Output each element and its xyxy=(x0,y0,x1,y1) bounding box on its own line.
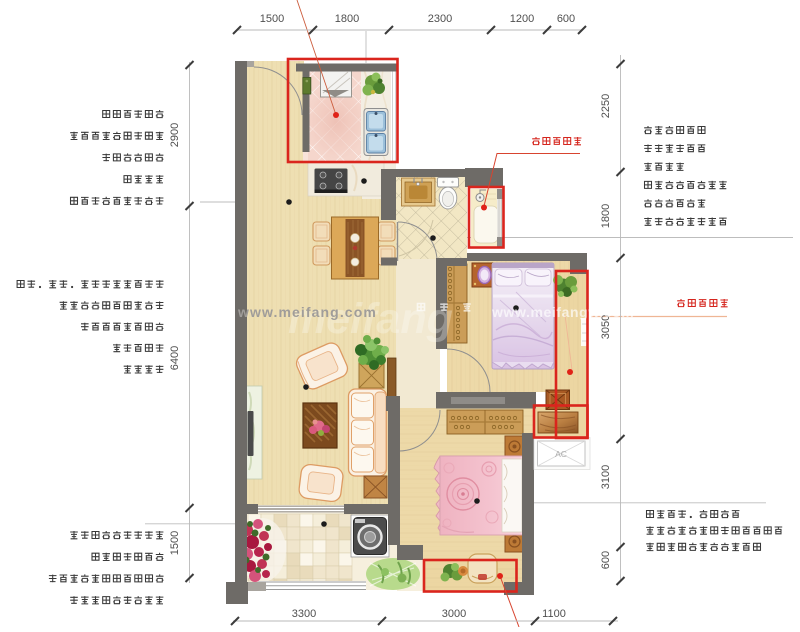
svg-text:600: 600 xyxy=(557,13,575,25)
svg-text:1500: 1500 xyxy=(169,531,181,555)
svg-text:2900: 2900 xyxy=(169,123,181,147)
svg-text:www.meifangw.com: www.meifangw.com xyxy=(491,304,634,320)
svg-text:3300: 3300 xyxy=(292,608,316,620)
svg-text:600: 600 xyxy=(600,551,612,569)
svg-text:2300: 2300 xyxy=(428,13,452,25)
svg-text:AC: AC xyxy=(555,449,567,459)
svg-text:1500: 1500 xyxy=(260,13,284,25)
svg-text:www.meifang.com: www.meifang.com xyxy=(237,304,377,320)
svg-text:3000: 3000 xyxy=(442,608,466,620)
svg-text:1200: 1200 xyxy=(510,13,534,25)
svg-text:1100: 1100 xyxy=(542,608,566,620)
svg-text:1800: 1800 xyxy=(335,13,359,25)
svg-text:2250: 2250 xyxy=(600,94,612,118)
svg-text:1800: 1800 xyxy=(600,204,612,228)
svg-text:3100: 3100 xyxy=(600,465,612,489)
svg-text:6400: 6400 xyxy=(169,346,181,370)
